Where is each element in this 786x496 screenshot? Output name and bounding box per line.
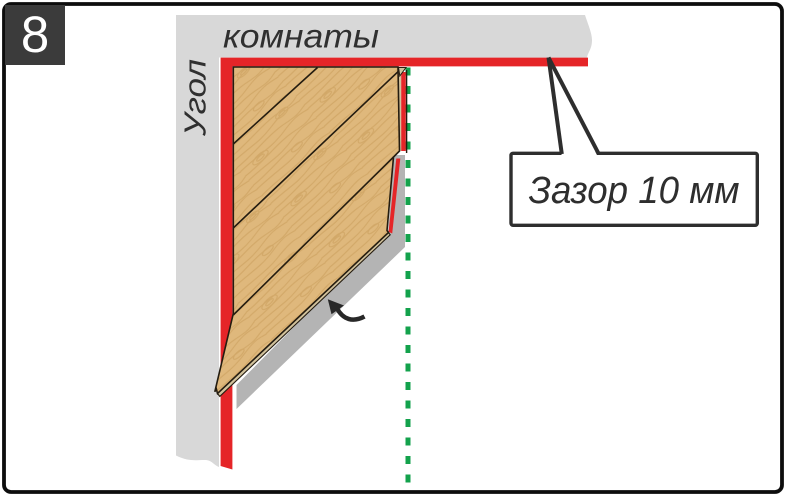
svg-text:комнаты: комнаты xyxy=(223,18,379,55)
svg-text:Зазор 10 мм: Зазор 10 мм xyxy=(529,170,740,212)
svg-text:8: 8 xyxy=(21,6,49,63)
svg-text:Угол: Угол xyxy=(178,59,213,137)
